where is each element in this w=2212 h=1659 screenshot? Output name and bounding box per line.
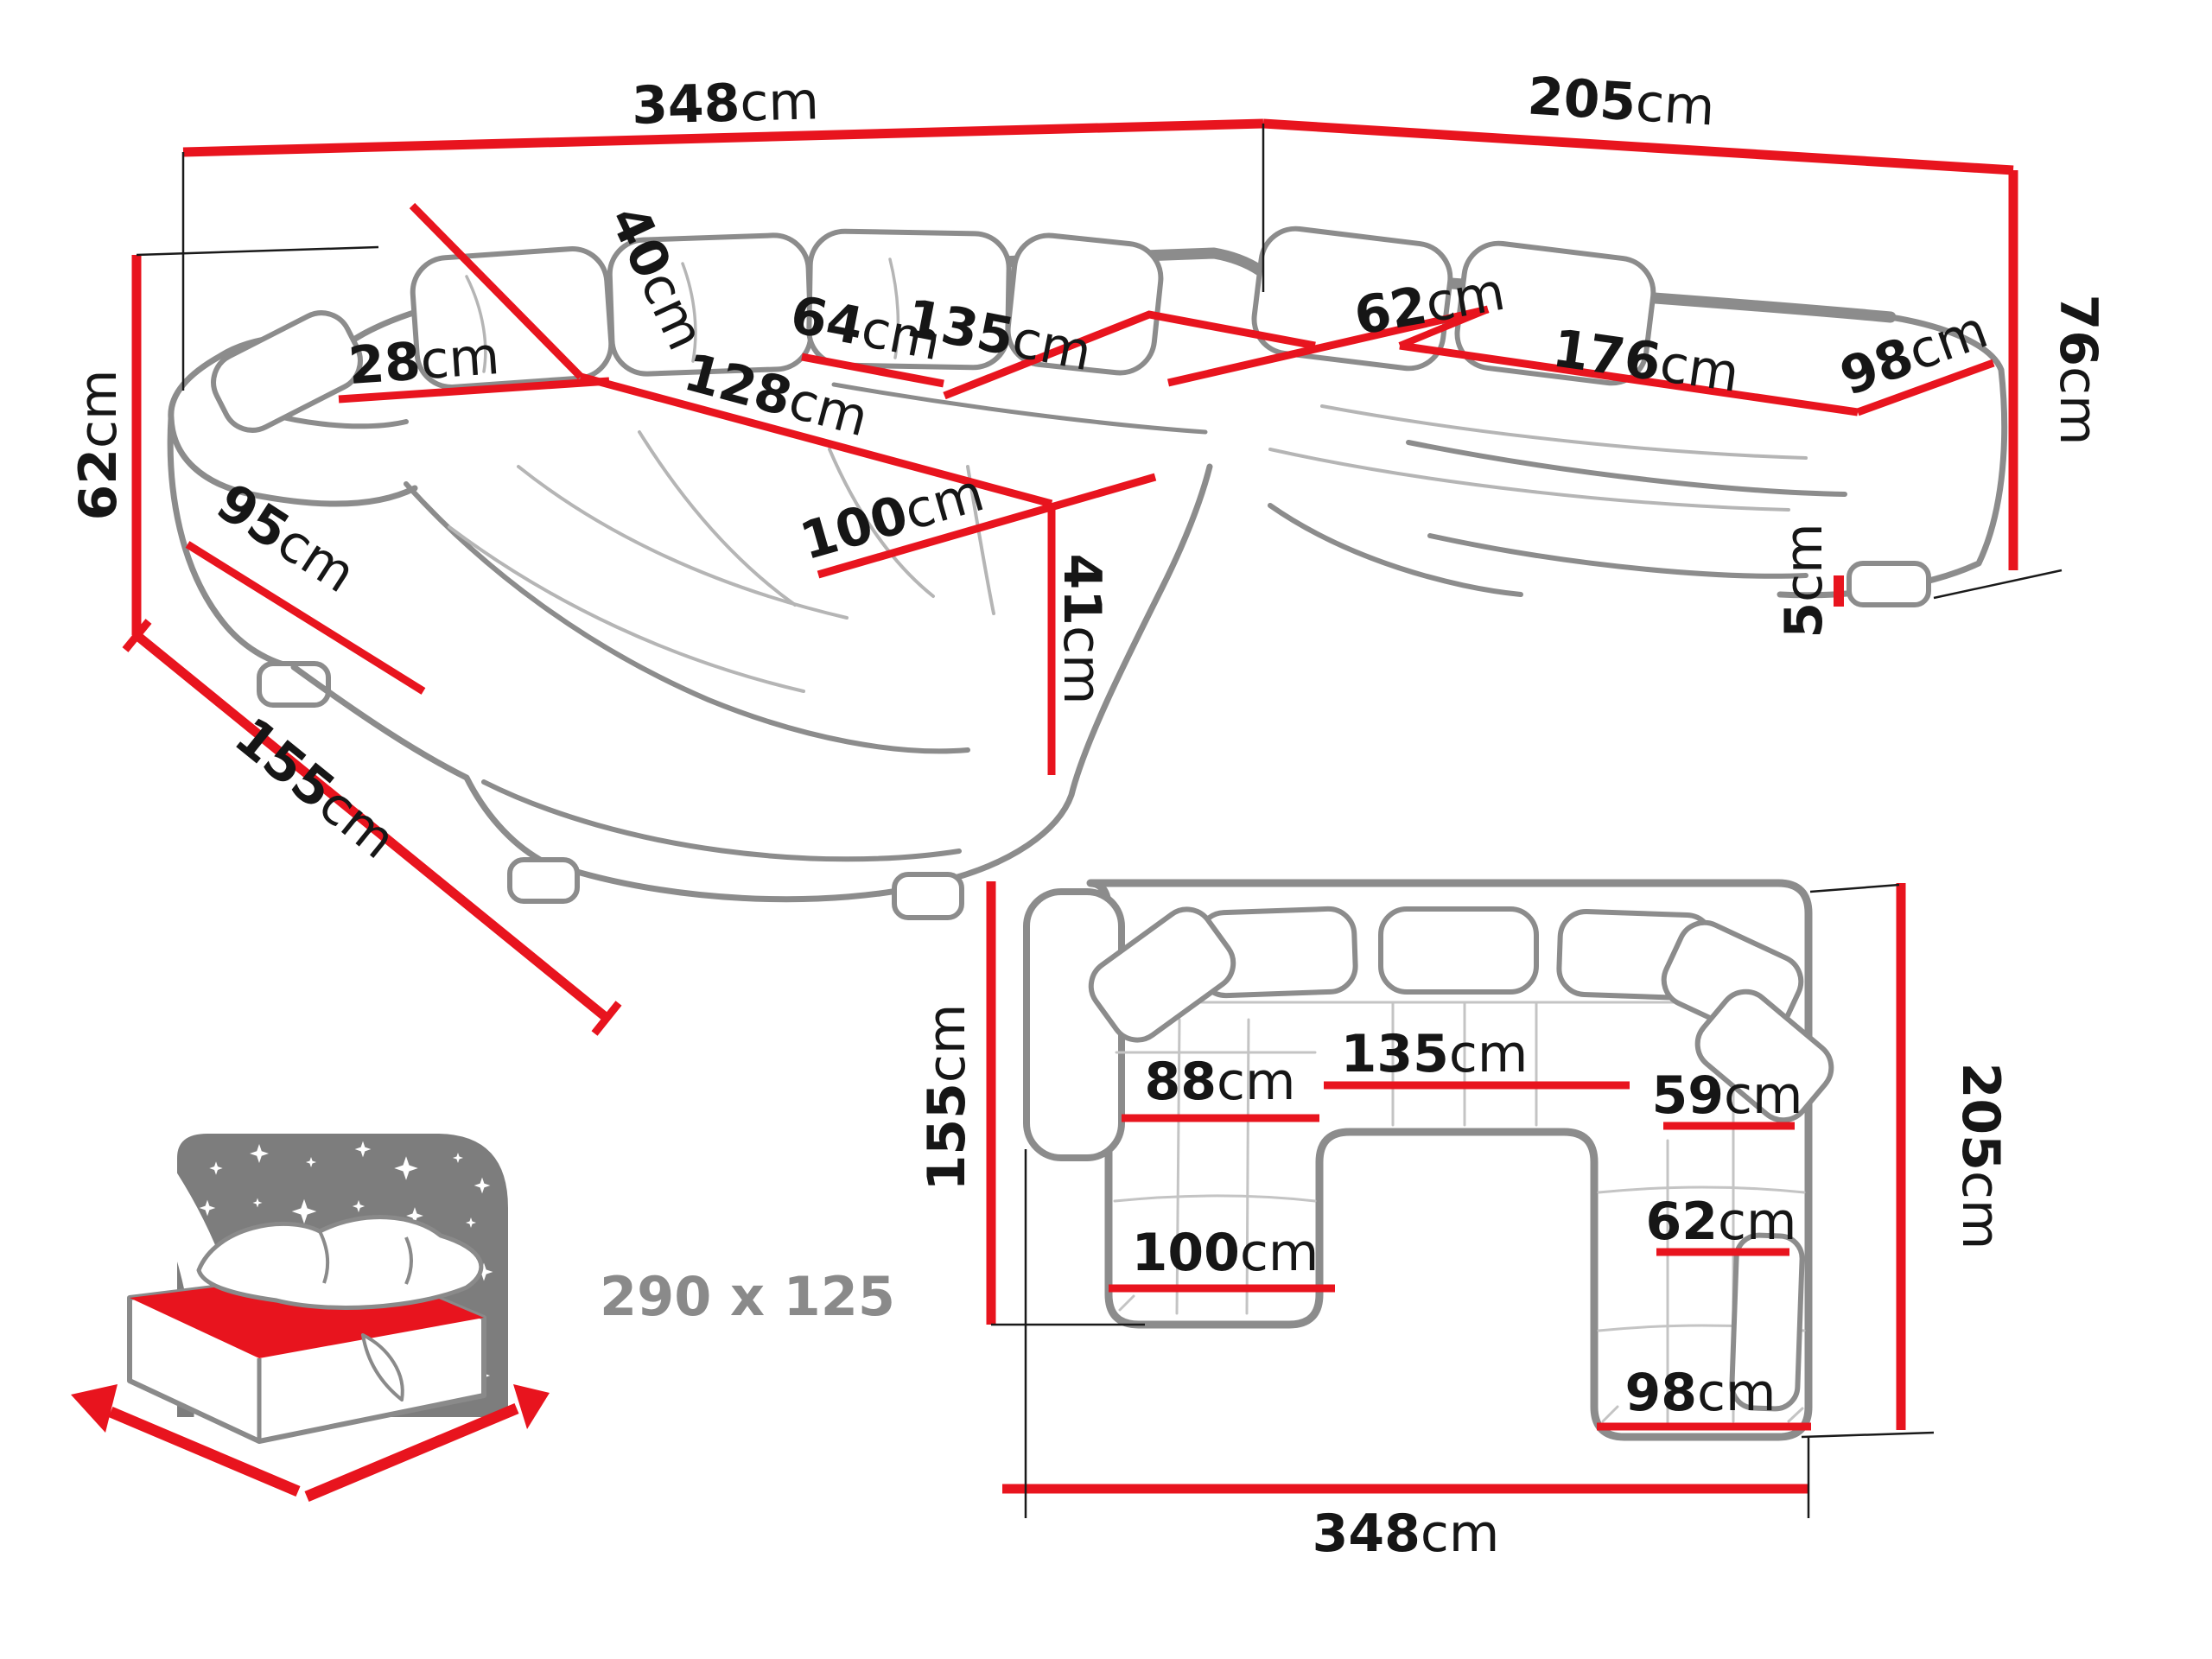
label-plan-total-width: 348cm [1313,1503,1500,1564]
plan-armrest [1027,892,1122,1158]
label-chaise-total-length: 155cm [223,706,406,871]
plan-pillow [1381,909,1536,992]
right-bottom-edge [1430,536,1806,576]
label-seat-height: 41cm [1052,554,1112,705]
sleeping-area-icon [71,1116,550,1497]
label-plan-right-side-depth: 205cm [1950,1063,2011,1250]
seam [518,467,847,618]
seam [1270,449,1789,510]
label-plan-right-seat-width: 62cm [1646,1192,1797,1252]
back-seat-front-band [834,385,1205,432]
right-front-edge [1408,442,1845,494]
chaise-foot-right [894,874,962,918]
sofa-dimension-diagram: 348cm 205cm 76cm 62cm 155cm 95cm 28cm 40… [0,0,2212,1659]
label-plan-right-end-width: 98cm [1625,1363,1777,1423]
label-back-width: 348cm [631,71,819,137]
right-leg [1849,563,1929,605]
label-plan-right-seat-width-upper: 59cm [1652,1065,1803,1126]
label-arm-front-length: 95cm [206,472,365,605]
label-arm-height: 62cm [68,370,129,521]
label-leg-height: 5cm [1774,523,1834,638]
label-armrest-width: 28cm [346,326,501,397]
inner-gap-edge [1270,505,1521,594]
sleeping-area-size: 290 x 125 [600,1265,895,1328]
label-plan-middle-seat-width: 135cm [1341,1024,1529,1084]
plan-view-drawing [1027,883,1842,1437]
label-back-height: 76cm [2048,295,2108,446]
chaise-lower-band [484,782,959,859]
seam [449,527,804,691]
label-plan-chaise-width: 100cm [1132,1223,1319,1283]
label-right-seat-length: 176cm [1549,318,1743,404]
label-plan-chaise-seat-width: 88cm [1145,1052,1296,1112]
seam [1322,406,1806,458]
label-right-width: 205cm [1526,66,1717,137]
chaise-foot-left [510,860,577,901]
label-plan-chaise-depth: 155cm [917,1004,977,1192]
